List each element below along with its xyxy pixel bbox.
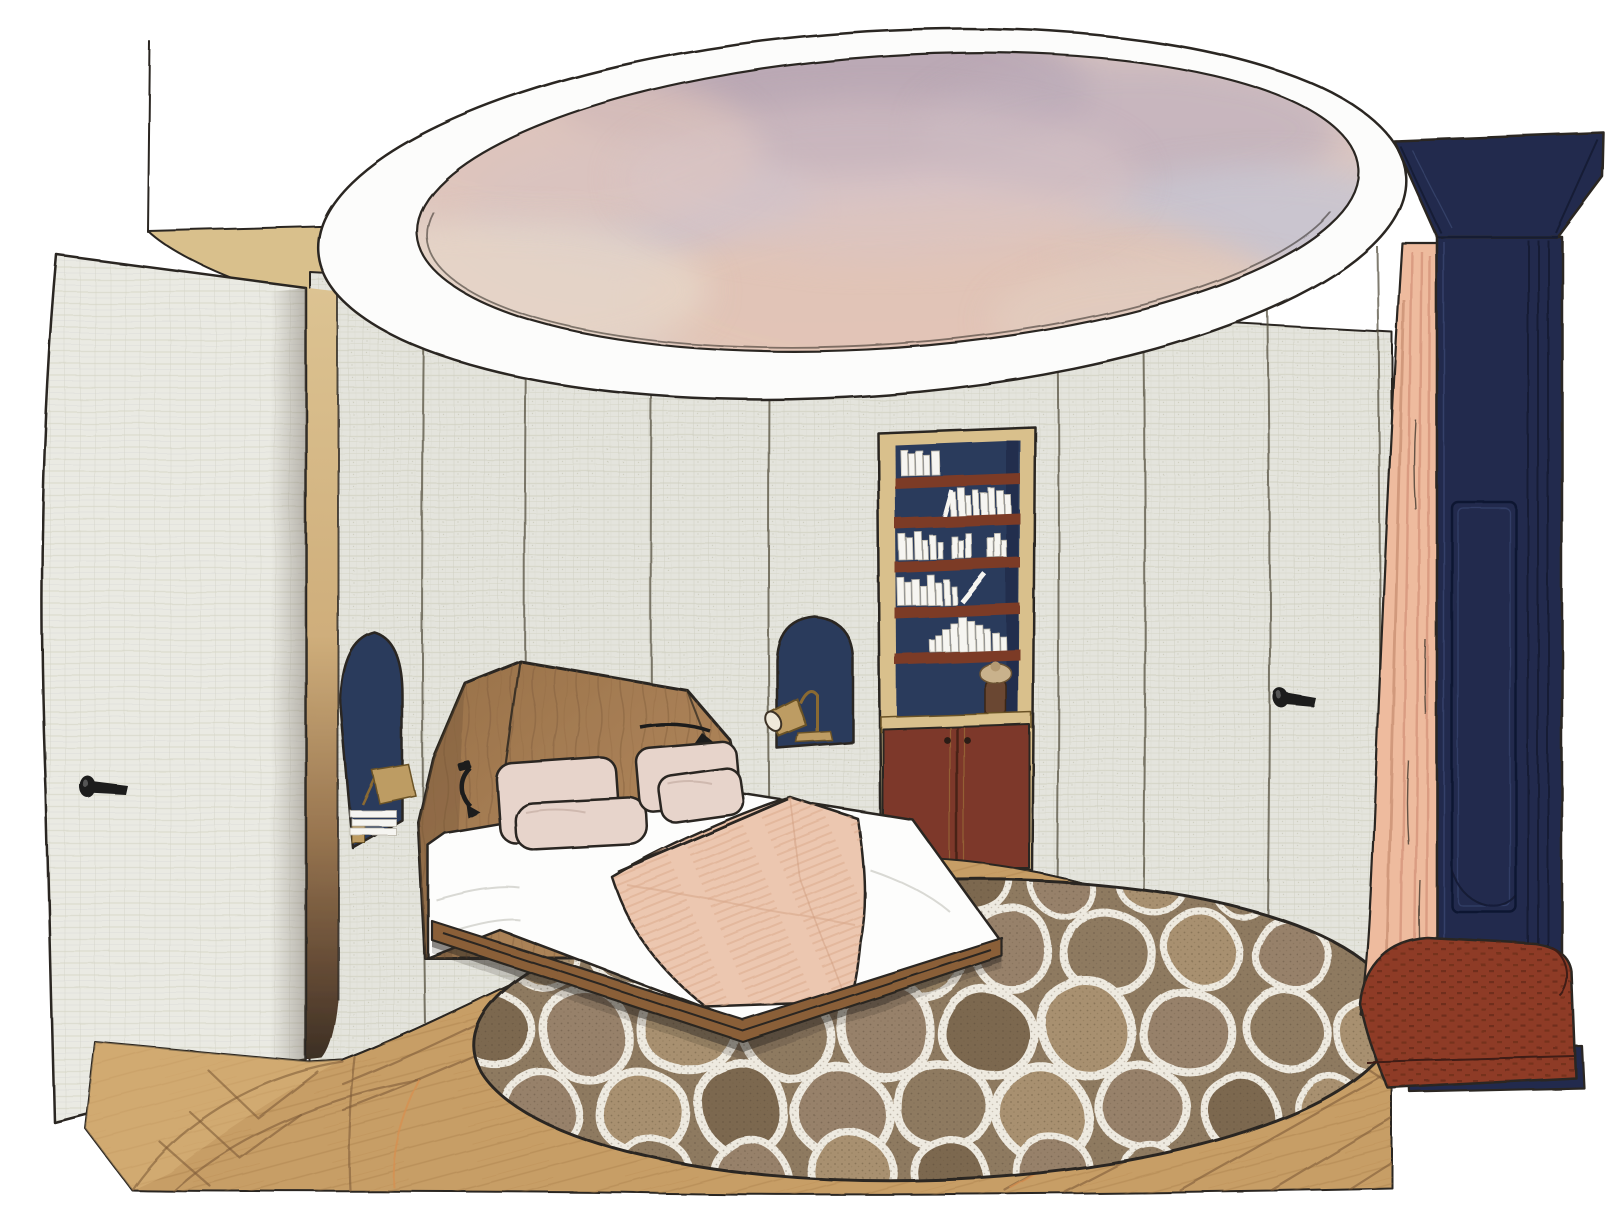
- bookshelf: [878, 427, 1035, 870]
- door-jamb: [305, 288, 338, 1060]
- cabinet-knob: [944, 737, 951, 744]
- column-shaft: [1437, 237, 1562, 1056]
- door: [42, 255, 306, 1122]
- left-niche-books: [350, 810, 396, 835]
- cabinet-knob: [964, 737, 971, 744]
- illustration-canvas: [0, 0, 1611, 1222]
- bench: [1355, 930, 1585, 1095]
- bedroom-illustration: [0, 0, 1611, 1222]
